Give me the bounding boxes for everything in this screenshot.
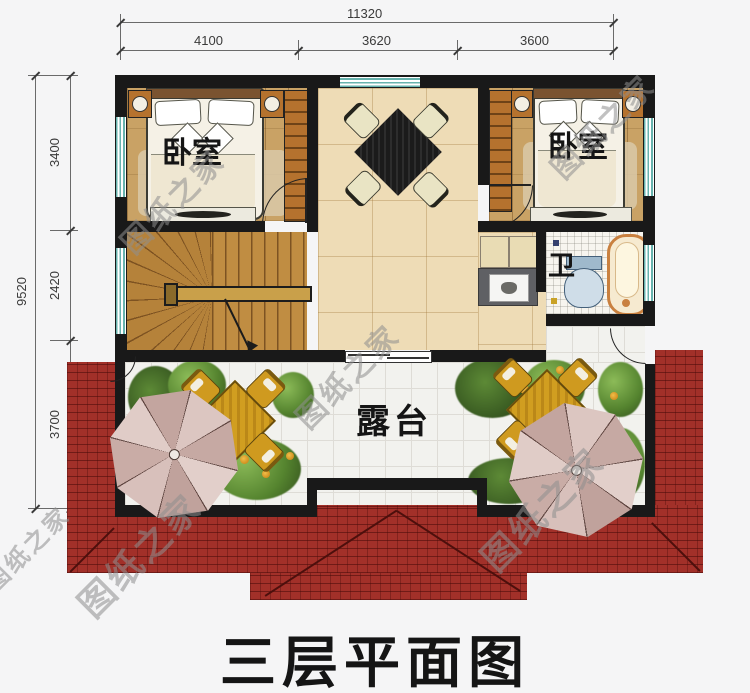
lamp-icon — [132, 96, 148, 112]
wall-bathroom-left — [536, 232, 546, 292]
dim-label-seg: 3600 — [520, 33, 549, 48]
chair-cushion — [262, 377, 278, 393]
dim-label-total-width: 11320 — [347, 6, 382, 21]
mosaic-accent — [551, 298, 557, 304]
wall-bathroom-bottom — [546, 314, 655, 326]
extension-line — [50, 230, 78, 231]
flower — [286, 452, 294, 460]
sink-drain-icon — [501, 282, 517, 294]
plan-title: 三层平面图 — [0, 618, 750, 693]
stair-handrail — [176, 286, 312, 302]
nightstand — [128, 90, 152, 118]
chair-cushion — [501, 366, 517, 382]
window-right-bath — [644, 245, 654, 301]
wall-bedroomR-bottom — [478, 221, 655, 232]
nightstand — [511, 90, 533, 118]
dimension-line-total-width — [120, 22, 613, 23]
door-leaf — [489, 184, 531, 186]
window-right-bedroom — [644, 118, 654, 196]
terrace-wall-connector — [307, 478, 317, 517]
label-bathroom: 卫 — [548, 244, 575, 283]
sink-basin — [489, 274, 529, 302]
dim-label-seg: 3620 — [362, 33, 391, 48]
chair-cushion — [189, 377, 205, 393]
label-terrace: 露台 — [356, 394, 432, 443]
dimension-line-total-height — [35, 75, 36, 508]
dim-label-total-height: 9520 — [14, 277, 29, 306]
nightstand — [260, 90, 284, 118]
window-top — [340, 77, 420, 87]
bath-cabinet — [480, 236, 538, 268]
extension-line — [50, 340, 78, 341]
pillow — [154, 99, 201, 126]
chair-cushion — [574, 366, 590, 382]
bathtub-drain-icon — [622, 299, 630, 307]
tv-icon — [553, 211, 607, 218]
lamp-icon — [514, 96, 530, 112]
sink-counter — [478, 268, 538, 306]
floor-plan-canvas: 11320 4100 3620 3600 9520 3400 2420 3700 — [0, 0, 750, 693]
watermark: 图纸之家 — [0, 497, 77, 598]
lamp-icon — [264, 96, 280, 112]
wall-hall-bedroomR — [478, 88, 489, 185]
bed-headboard — [146, 88, 262, 99]
cabinet-divider — [508, 237, 510, 267]
window-left-bedroom — [116, 117, 126, 197]
dimension-line-width-segments — [120, 50, 613, 51]
terrace-wall-right — [645, 364, 655, 517]
bathtub-inner — [615, 242, 639, 298]
pillow — [207, 99, 254, 126]
dim-label-seg: 4100 — [194, 33, 223, 48]
wall-bedroomL-hall — [307, 88, 318, 232]
dim-label-seg: 2420 — [47, 271, 62, 300]
terrace-wall-bottom-center — [307, 478, 487, 490]
dim-label-seg: 3700 — [47, 410, 62, 439]
chair-cushion — [260, 448, 276, 464]
dim-label-seg: 3400 — [47, 138, 62, 167]
window-left-stair — [116, 248, 126, 334]
